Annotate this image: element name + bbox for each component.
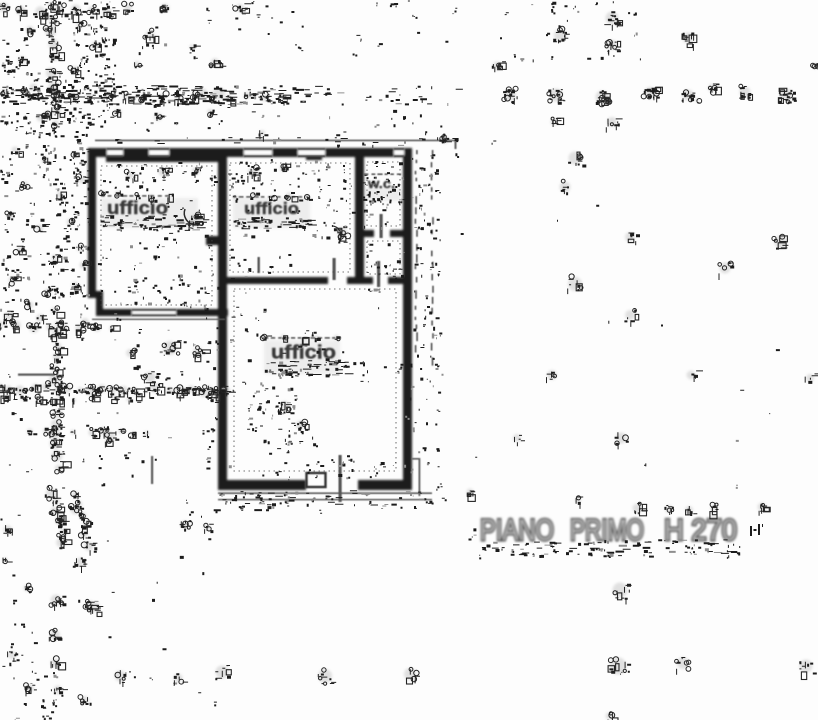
svg-text:ufficio: ufficio <box>107 197 168 218</box>
svg-text:PIANO: PIANO <box>480 514 554 547</box>
svg-text:ufficio: ufficio <box>244 199 299 218</box>
svg-text:w.c.: w.c. <box>367 176 395 191</box>
